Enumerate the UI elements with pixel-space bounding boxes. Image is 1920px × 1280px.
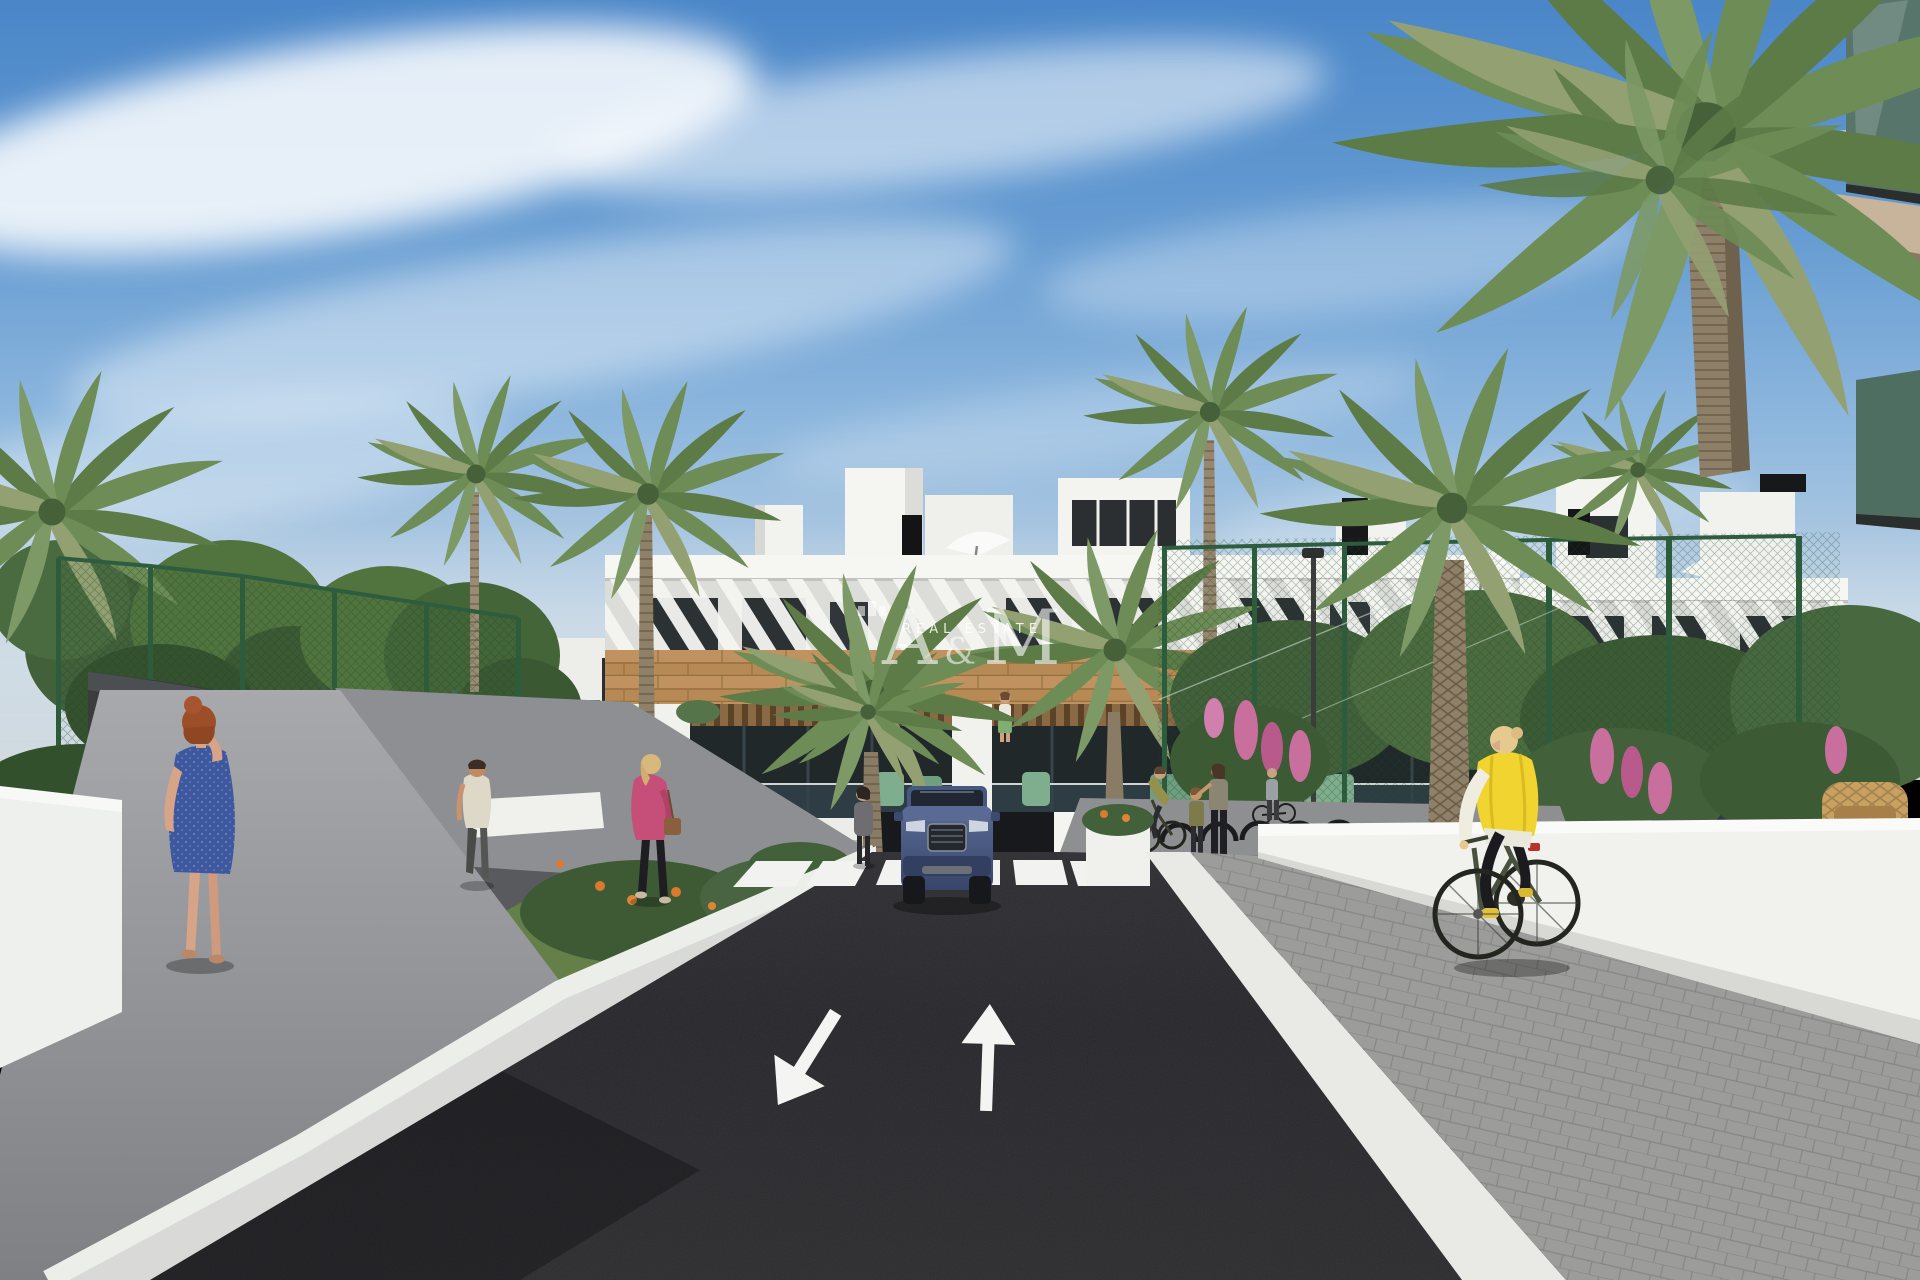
planter-box: [1082, 804, 1154, 886]
green-glass-balcony: [1856, 370, 1920, 520]
roof-vent: [902, 515, 922, 557]
roof-vent: [1760, 474, 1806, 492]
architectural-render: A&M REAL ESTATE: [0, 0, 1920, 1280]
